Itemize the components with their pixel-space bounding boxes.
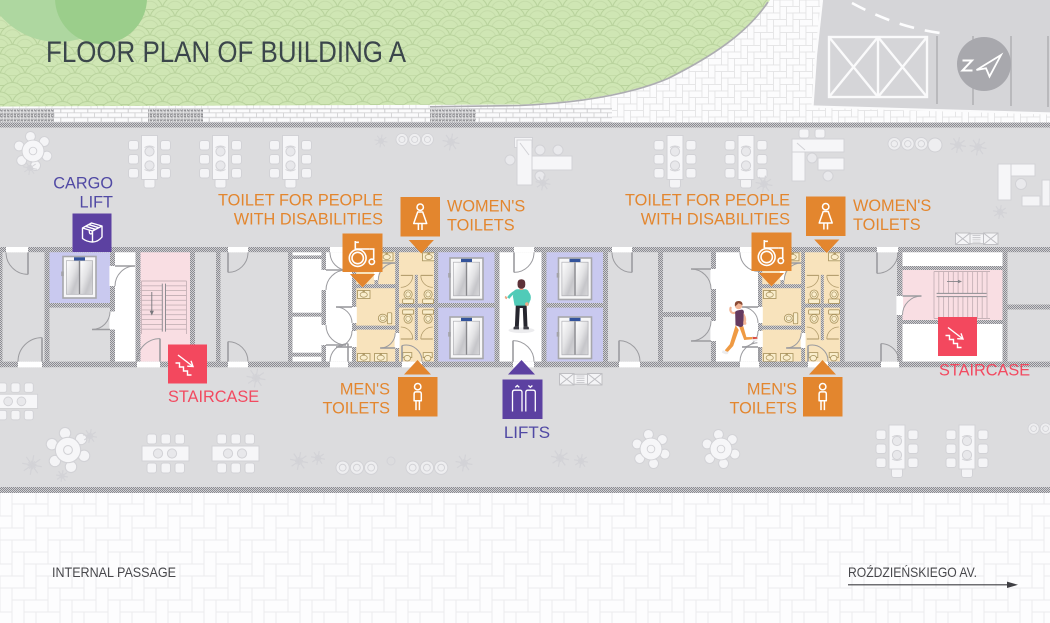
svg-text:TOILET FOR PEOPLE: TOILET FOR PEOPLE [625,192,790,210]
svg-text:LIFTS: LIFTS [504,423,550,442]
svg-text:WOMEN'S: WOMEN'S [853,197,931,215]
svg-text:CARGO: CARGO [53,175,113,193]
svg-text:MEN'S: MEN'S [340,381,390,399]
svg-text:TOILETS: TOILETS [322,400,390,418]
svg-text:STAIRCASE: STAIRCASE [939,362,1030,380]
svg-text:WITH DISABILITIES: WITH DISABILITIES [641,211,790,229]
svg-text:FLOOR PLAN OF BUILDING A: FLOOR PLAN OF BUILDING A [46,36,406,69]
svg-text:INTERNAL PASSAGE: INTERNAL PASSAGE [52,565,176,580]
svg-text:WITH DISABILITIES: WITH DISABILITIES [234,211,383,229]
svg-text:TOILET FOR PEOPLE: TOILET FOR PEOPLE [218,192,383,210]
svg-text:MEN'S: MEN'S [747,381,797,399]
svg-text:TOILETS: TOILETS [729,400,797,418]
svg-text:LIFT: LIFT [80,194,114,212]
svg-text:TOILETS: TOILETS [447,217,515,235]
svg-text:ROŹDZIEŃSKIEGO AV.: ROŹDZIEŃSKIEGO AV. [848,565,977,580]
svg-text:WOMEN'S: WOMEN'S [447,198,525,216]
svg-text:TOILETS: TOILETS [853,216,921,234]
svg-text:STAIRCASE: STAIRCASE [168,388,259,406]
